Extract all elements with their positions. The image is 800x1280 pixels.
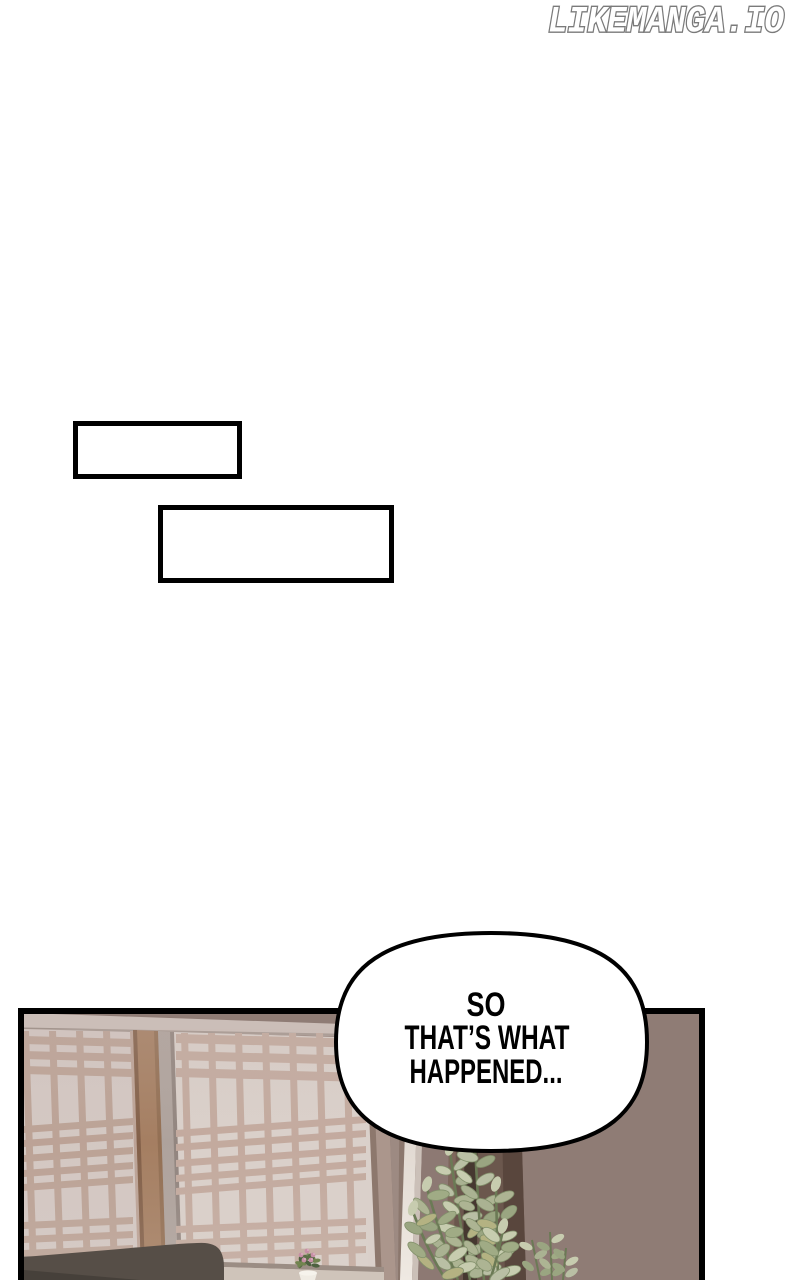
- svg-text:LIKEMANGA.IO: LIKEMANGA.IO: [548, 2, 784, 44]
- svg-text:HAPPENED...: HAPPENED...: [410, 1053, 563, 1091]
- svg-text:THAT’S WHAT: THAT’S WHAT: [405, 1019, 570, 1057]
